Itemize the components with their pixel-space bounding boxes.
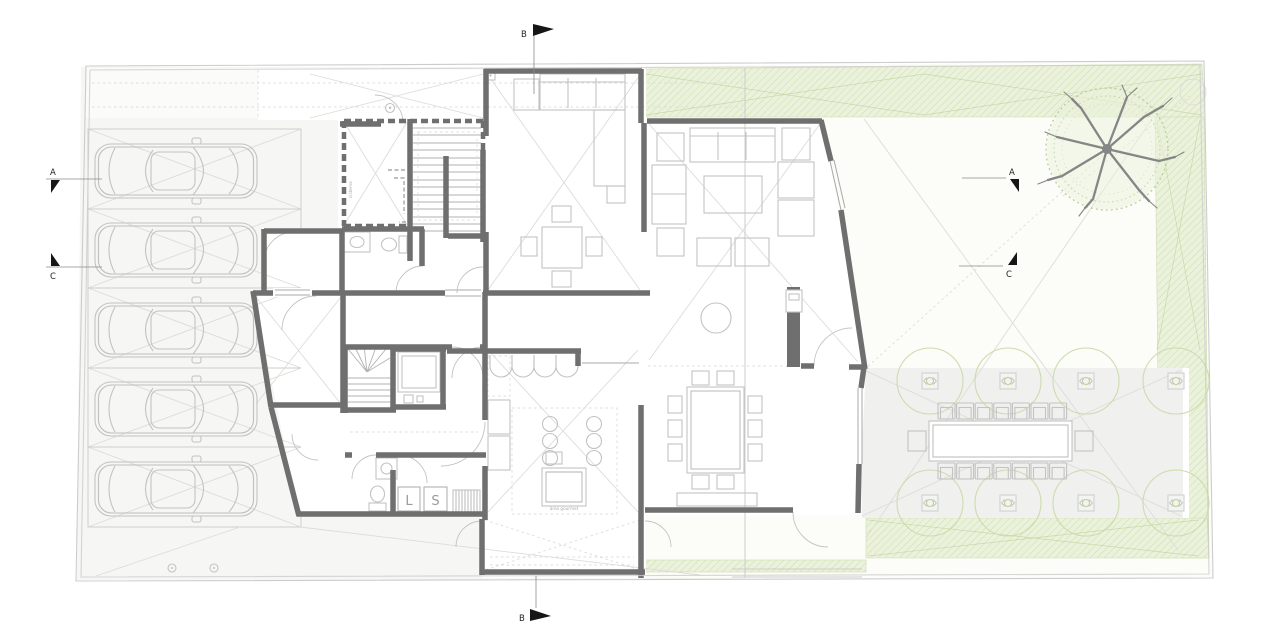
island-note: área gourmet [550, 506, 579, 511]
svg-text:C: C [1006, 270, 1012, 280]
media-unit [786, 290, 802, 312]
svg-text:C: C [50, 272, 56, 282]
planting-band-bottom [866, 518, 1209, 558]
dryer-label: S [431, 494, 439, 509]
section-marker-b-bottom: B [519, 576, 551, 624]
svg-text:B: B [521, 30, 527, 40]
svg-text:A: A [50, 168, 56, 178]
floor-plan-drawing: área gourmet L S [0, 0, 1280, 640]
washer-label: L [405, 494, 413, 509]
svg-text:B: B [519, 614, 525, 624]
outdoor-table [929, 421, 1072, 461]
cistern-label: cisterna [348, 181, 353, 198]
svg-text:A: A [1009, 168, 1015, 178]
planting-strip-south [645, 560, 866, 572]
floor-plan-page: área gourmet L S [0, 0, 1280, 640]
